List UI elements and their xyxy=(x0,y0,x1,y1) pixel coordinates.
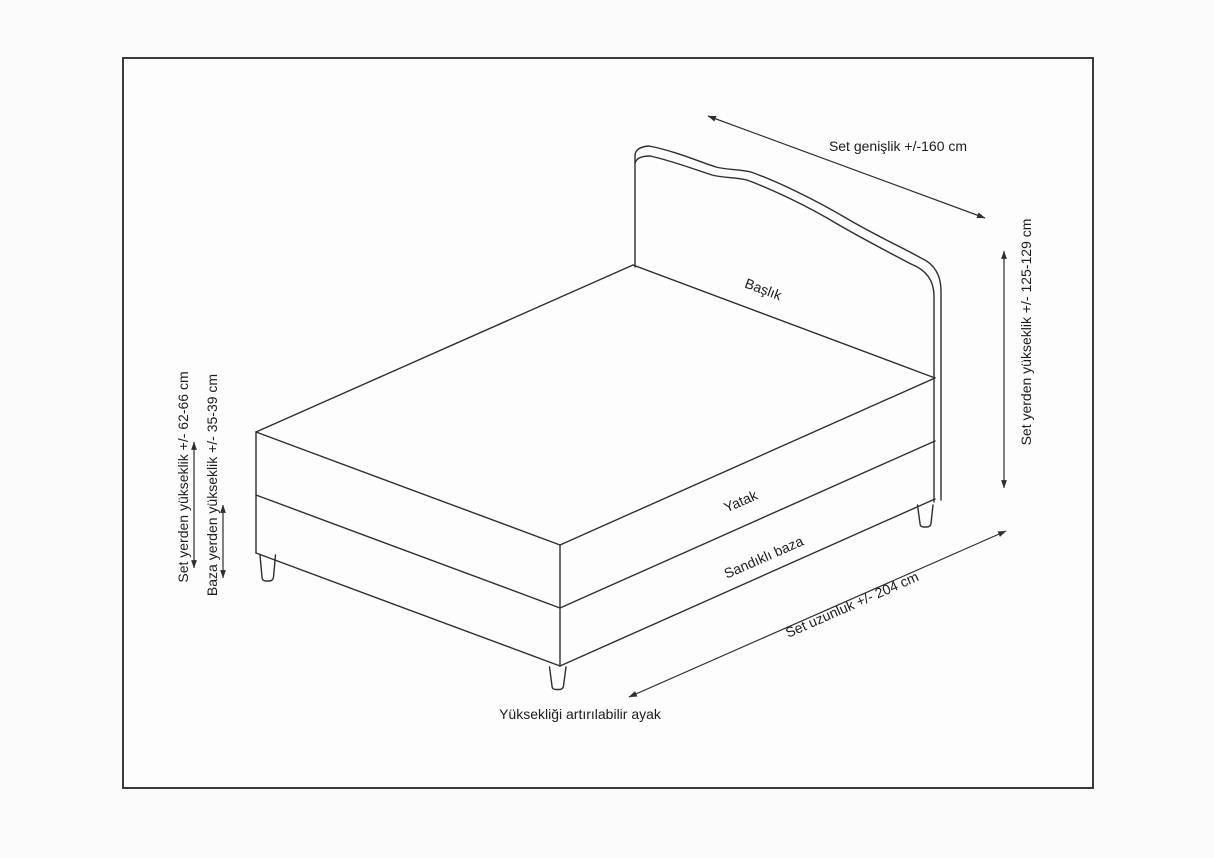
base-height-label: Baza yerden yükseklik +/- 35-39 cm xyxy=(204,374,220,596)
bed-dimension-diagram-page: Set genişlik +/-160 cm Set yerden yüksek… xyxy=(0,0,1214,858)
diagram-border xyxy=(123,58,1093,788)
set-height-total-label: Set yerden yükseklik +/- 125-129 cm xyxy=(1018,219,1034,446)
set-width-label: Set genişlik +/-160 cm xyxy=(829,138,967,154)
set-height-mattress-label: Set yerden yükseklik +/- 62-66 cm xyxy=(175,371,191,582)
adjustable-leg-label: Yüksekliği artırılabilir ayak xyxy=(499,706,662,722)
bed-dimension-diagram: Set genişlik +/-160 cm Set yerden yüksek… xyxy=(0,0,1214,858)
